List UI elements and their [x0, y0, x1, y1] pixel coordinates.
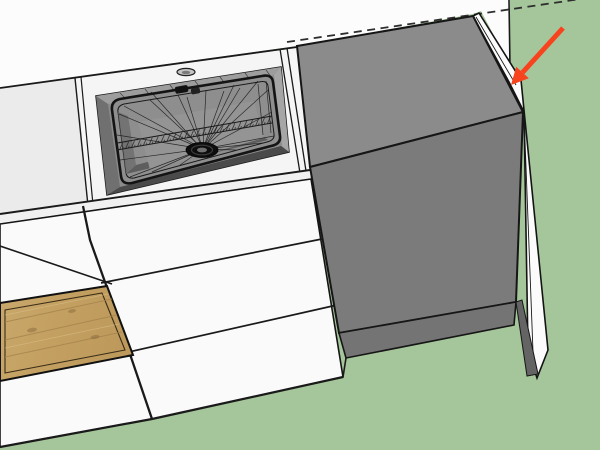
left-countertop [0, 78, 86, 214]
viewport-canvas[interactable] [0, 0, 600, 450]
model-viewport[interactable] [0, 0, 600, 450]
wall-right-edge [509, 0, 510, 68]
sink-drain-hub [197, 148, 207, 153]
faucet-hole-inner [182, 71, 190, 74]
